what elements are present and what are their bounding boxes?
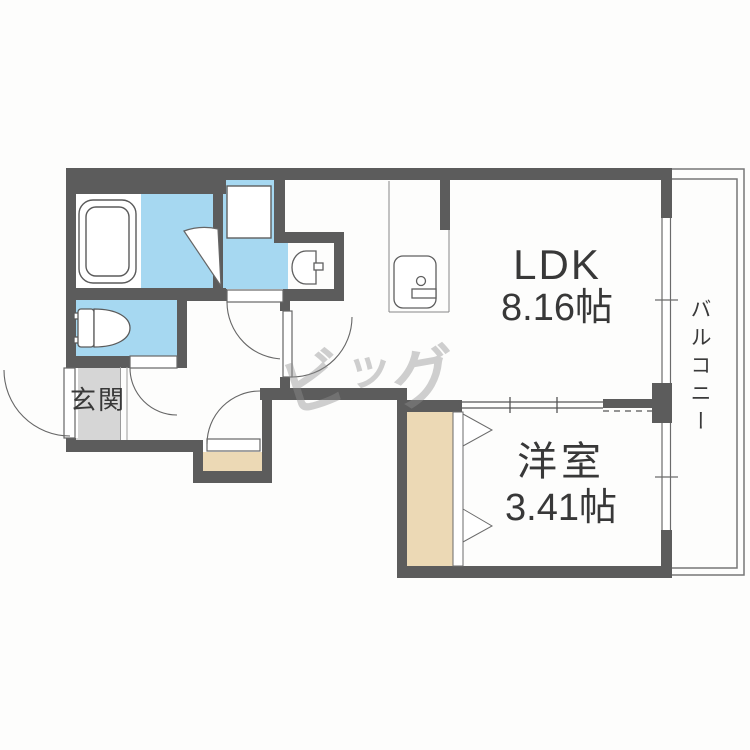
kitchen-sink-icon: [394, 256, 436, 308]
balcony-label: バルコニー: [688, 298, 710, 438]
floor-plan-page: LDK 8.16帖 洋室 3.41帖 玄関 バルコニー ビ ッ グ: [0, 0, 750, 750]
ldk-door-icon: [280, 311, 352, 377]
floor-plan-drawing: [0, 0, 750, 750]
wall-storage-bottom: [193, 471, 272, 483]
wall-partition-bar: [603, 399, 652, 408]
washbasin-icon: [292, 251, 323, 284]
closet-floor: [407, 412, 453, 566]
hall-storage-door-icon: [203, 391, 262, 452]
toilet-door-icon: [130, 356, 177, 415]
hall-storage-floor: [203, 450, 262, 471]
ldk-size-label: 8.16帖: [482, 289, 632, 329]
wall-closet-top: [397, 400, 462, 412]
toilet-icon: [74, 309, 130, 347]
ldk-room-label: LDK: [487, 243, 627, 287]
bathtub-icon: [79, 200, 136, 283]
wall-basin-right: [334, 232, 344, 301]
washroom-floor-lower: [223, 243, 288, 289]
wall-storage-right: [262, 400, 272, 483]
wall-top-bath: [66, 168, 226, 194]
windows: [655, 218, 678, 530]
western-window-icon: [655, 423, 678, 530]
wall-east-top: [661, 168, 672, 218]
wall-kitchen-stub: [440, 180, 450, 230]
washing-machine-pan-icon: [227, 186, 271, 238]
wall-basin-top: [274, 232, 334, 243]
wall-western-west: [397, 388, 407, 578]
wall-toilet-bottom: [66, 356, 130, 368]
ldk-window-icon: [655, 218, 678, 383]
wall-hall-south: [260, 388, 407, 400]
wall-east-bottom: [661, 530, 672, 578]
entrance-door-icon: [4, 368, 78, 438]
wall-storage-left: [193, 448, 203, 471]
wall-toilet-right: [177, 288, 187, 368]
wall-east-middle: [652, 383, 672, 423]
wall-bottom-entrance: [66, 440, 203, 452]
western-room-label: 洋室: [471, 441, 651, 483]
wall-western-south: [397, 566, 672, 578]
western-room-size-label: 3.41帖: [471, 489, 651, 529]
wall-washroom-south-left: [187, 289, 227, 301]
washroom-door-icon: [227, 290, 284, 359]
entrance-label: 玄関: [68, 387, 128, 414]
